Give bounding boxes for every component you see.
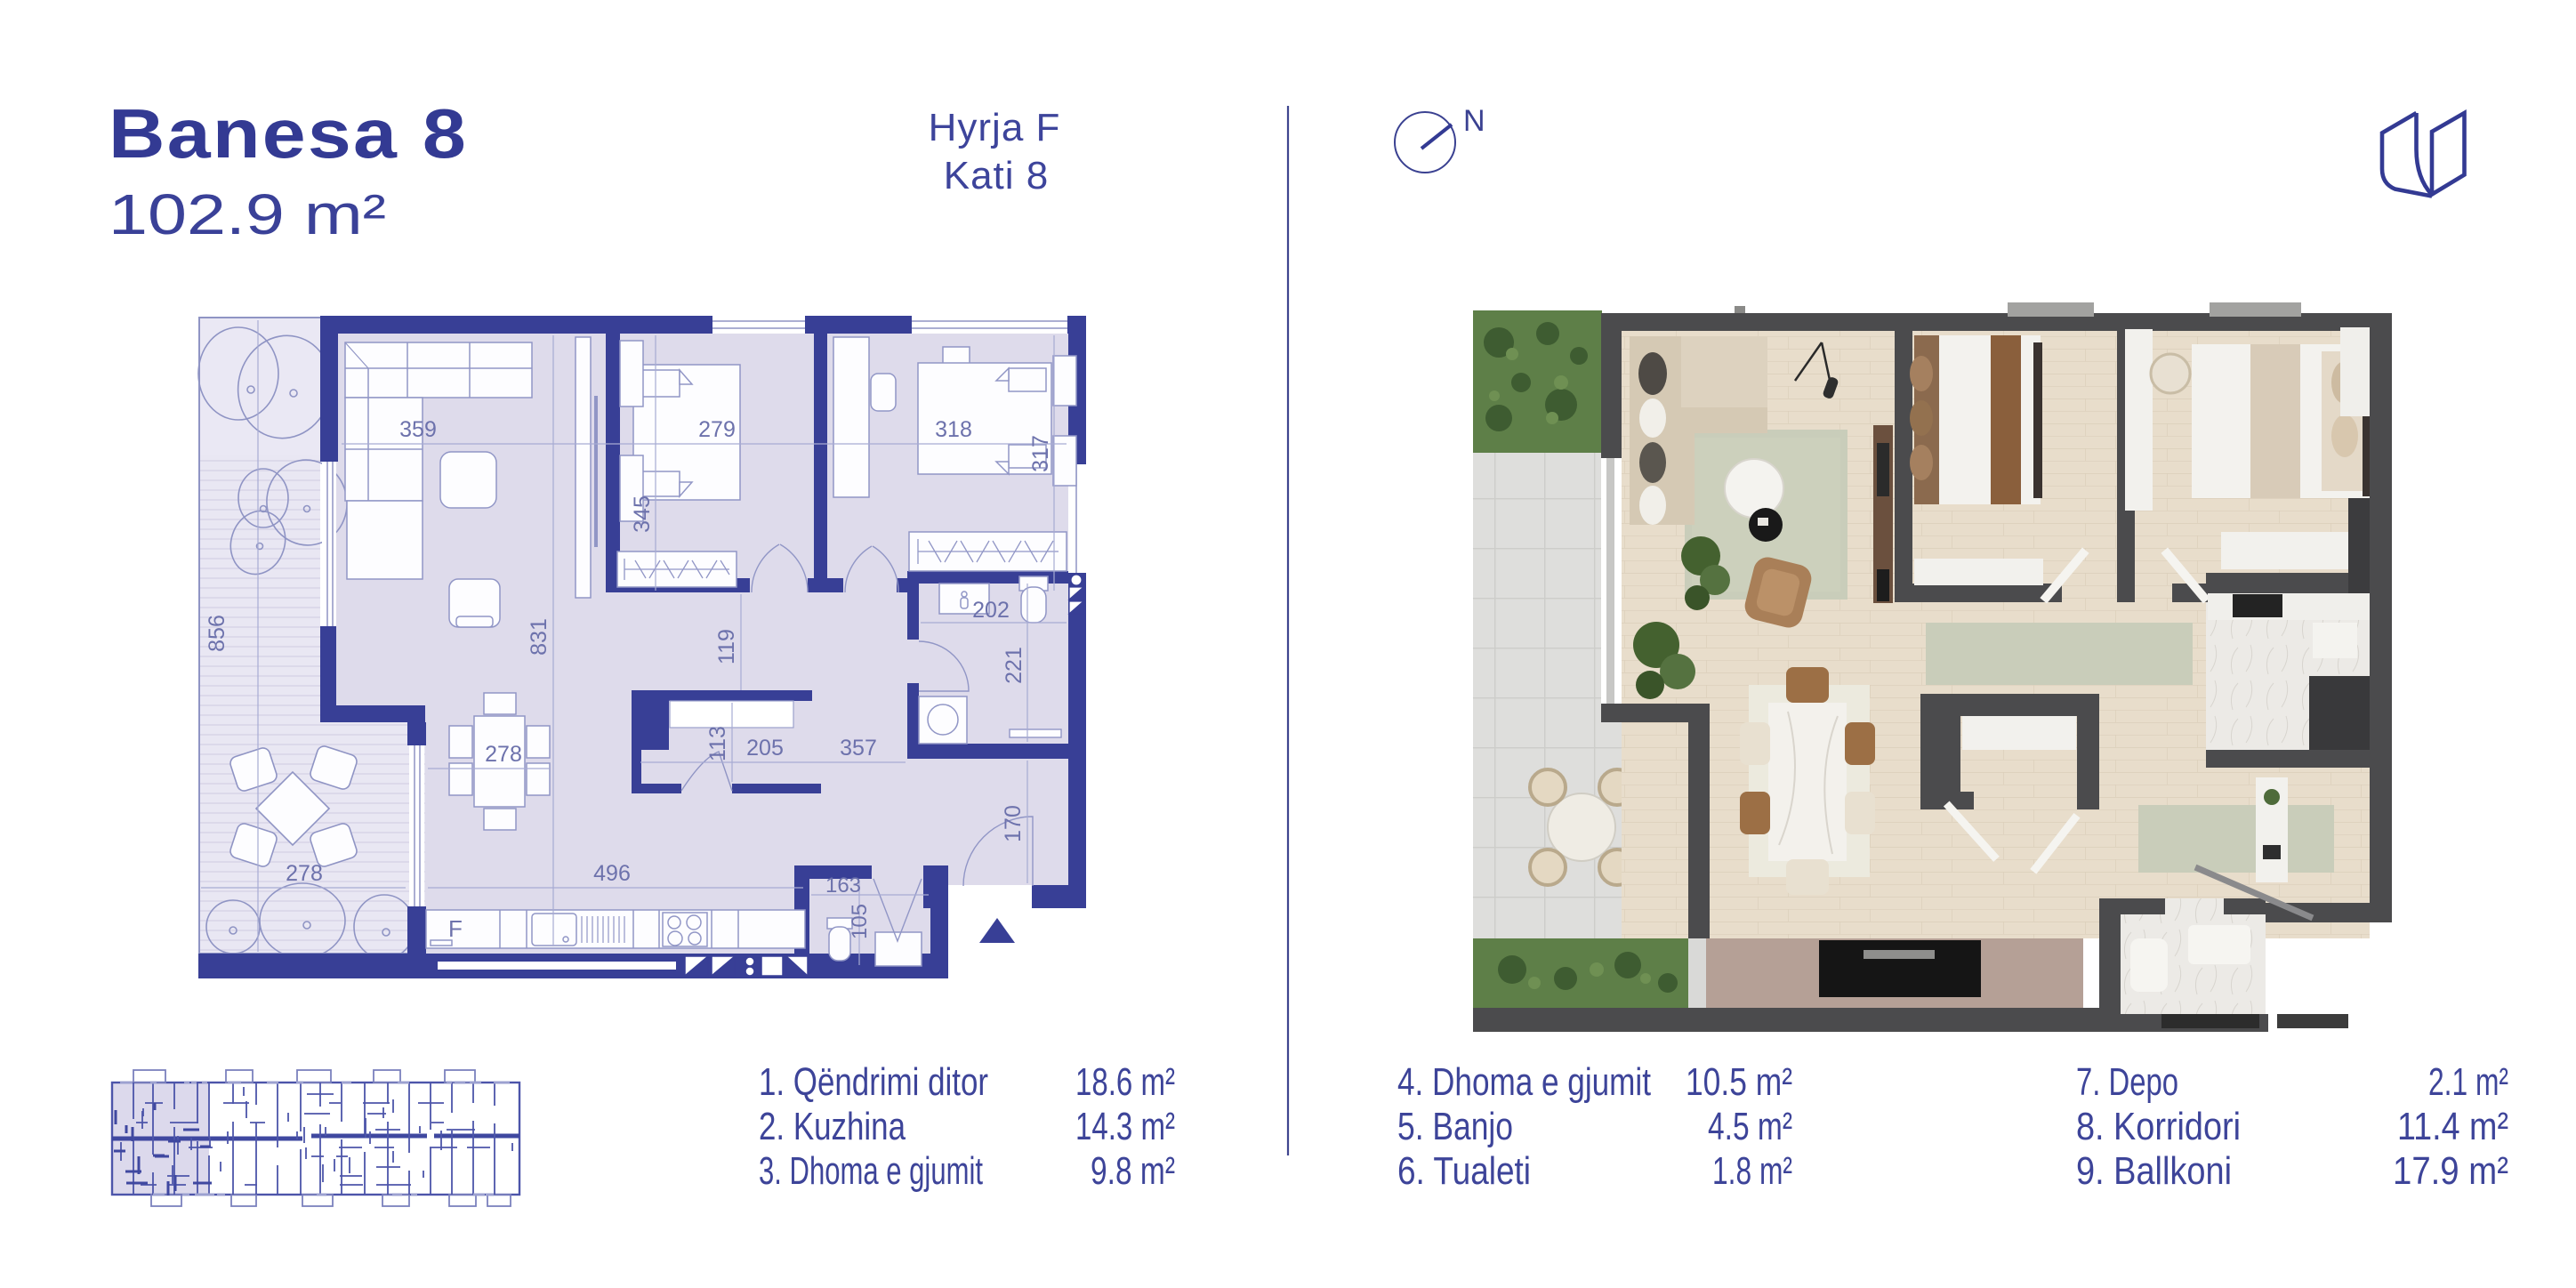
svg-text:4. Dhoma e gjumit: 4. Dhoma e gjumit [1397, 1060, 1651, 1104]
svg-text:8. Korridori: 8. Korridori [2076, 1105, 2241, 1148]
svg-text:6. Tualeti: 6. Tualeti [1397, 1149, 1531, 1193]
svg-text:345: 345 [630, 495, 655, 533]
svg-text:318: 318 [935, 417, 972, 442]
svg-text:496: 496 [593, 861, 631, 886]
svg-text:105: 105 [848, 904, 872, 939]
svg-text:205: 205 [746, 736, 784, 761]
svg-text:4.5 m²: 4.5 m² [1708, 1105, 1792, 1148]
svg-text:11.4 m²: 11.4 m² [2397, 1105, 2508, 1148]
svg-text:17.9 m²: 17.9 m² [2393, 1149, 2508, 1193]
svg-text:2.1 m²: 2.1 m² [2428, 1060, 2508, 1104]
svg-text:279: 279 [698, 417, 736, 442]
svg-text:F: F [448, 915, 463, 942]
svg-text:Hyrja F: Hyrja F [929, 106, 1061, 149]
svg-text:102.9 m²: 102.9 m² [109, 182, 386, 246]
svg-text:9. Ballkoni: 9. Ballkoni [2076, 1149, 2232, 1193]
svg-text:1. Qëndrimi ditor: 1. Qëndrimi ditor [759, 1060, 988, 1104]
svg-text:278: 278 [485, 742, 522, 767]
svg-text:163: 163 [825, 873, 861, 898]
svg-text:18.6 m²: 18.6 m² [1075, 1060, 1175, 1104]
svg-text:Kati 8: Kati 8 [944, 154, 1050, 197]
svg-text:1.8 m²: 1.8 m² [1712, 1149, 1792, 1193]
svg-text:119: 119 [714, 629, 739, 664]
svg-text:170: 170 [1001, 805, 1026, 842]
svg-text:Banesa 8: Banesa 8 [109, 94, 468, 173]
svg-text:7. Depo: 7. Depo [2076, 1060, 2178, 1104]
svg-text:317: 317 [1028, 435, 1053, 472]
svg-text:113: 113 [705, 726, 730, 761]
svg-text:5. Banjo: 5. Banjo [1397, 1105, 1513, 1148]
svg-text:2. Kuzhina: 2. Kuzhina [759, 1105, 906, 1148]
svg-text:14.3 m²: 14.3 m² [1075, 1105, 1175, 1148]
svg-text:N: N [1463, 104, 1485, 138]
svg-text:9.8 m²: 9.8 m² [1091, 1149, 1175, 1193]
svg-text:278: 278 [286, 861, 323, 886]
svg-text:221: 221 [1002, 647, 1026, 684]
svg-text:202: 202 [972, 598, 1010, 623]
svg-text:10.5 m²: 10.5 m² [1686, 1060, 1792, 1104]
svg-text:856: 856 [205, 615, 229, 652]
svg-text:831: 831 [527, 618, 551, 656]
svg-text:3. Dhoma e gjumit: 3. Dhoma e gjumit [759, 1149, 983, 1193]
svg-text:359: 359 [399, 417, 437, 442]
svg-text:357: 357 [840, 736, 877, 761]
